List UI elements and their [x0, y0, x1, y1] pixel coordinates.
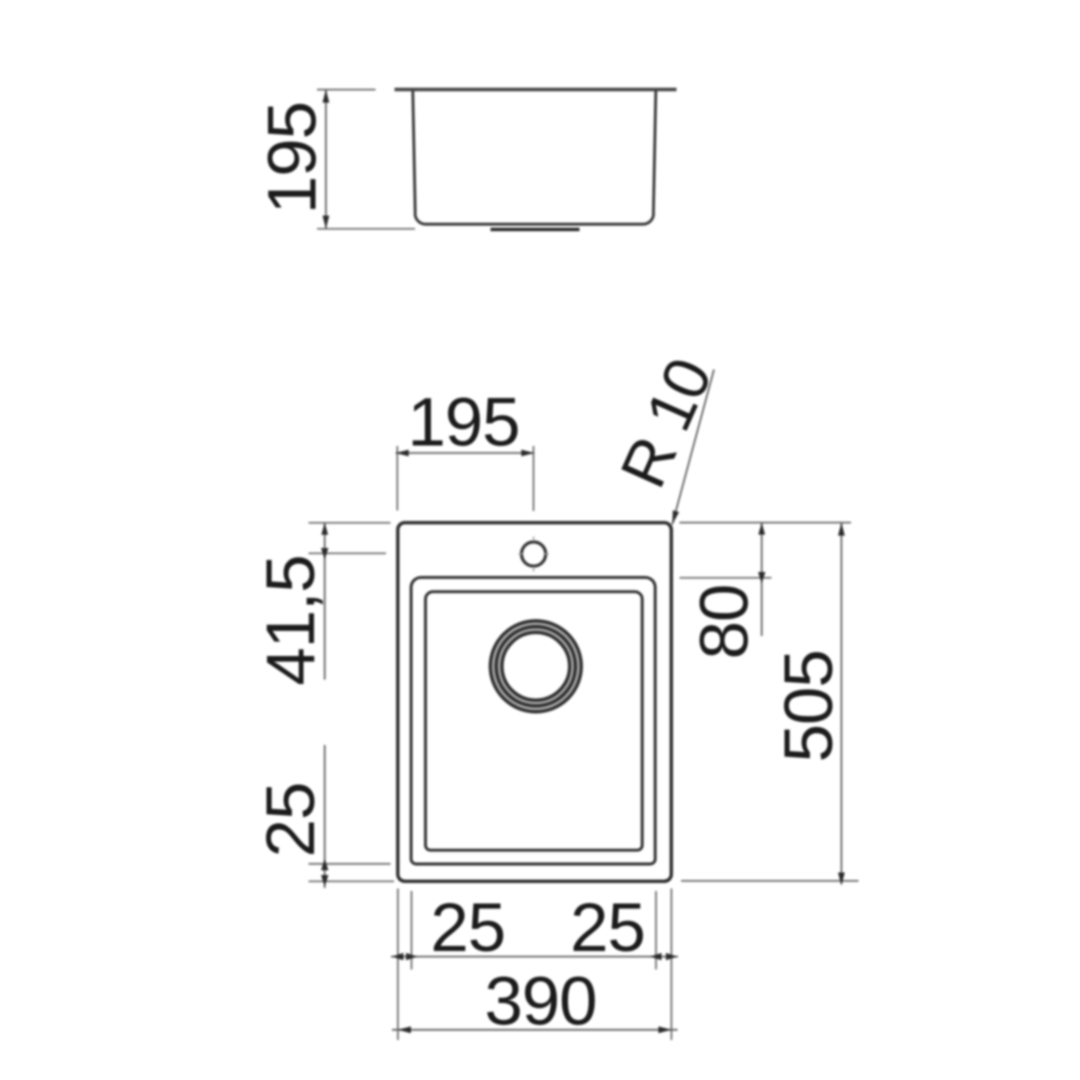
svg-text:25: 25	[430, 889, 505, 966]
svg-text:25: 25	[252, 783, 329, 858]
svg-text:505: 505	[770, 650, 847, 762]
svg-text:80: 80	[686, 585, 763, 660]
svg-text:25: 25	[570, 889, 645, 966]
svg-text:390: 390	[484, 962, 596, 1039]
svg-text:195: 195	[254, 102, 331, 214]
svg-text:41,5: 41,5	[252, 555, 329, 685]
svg-text:195: 195	[407, 384, 519, 461]
svg-text:R 10: R 10	[606, 348, 725, 497]
